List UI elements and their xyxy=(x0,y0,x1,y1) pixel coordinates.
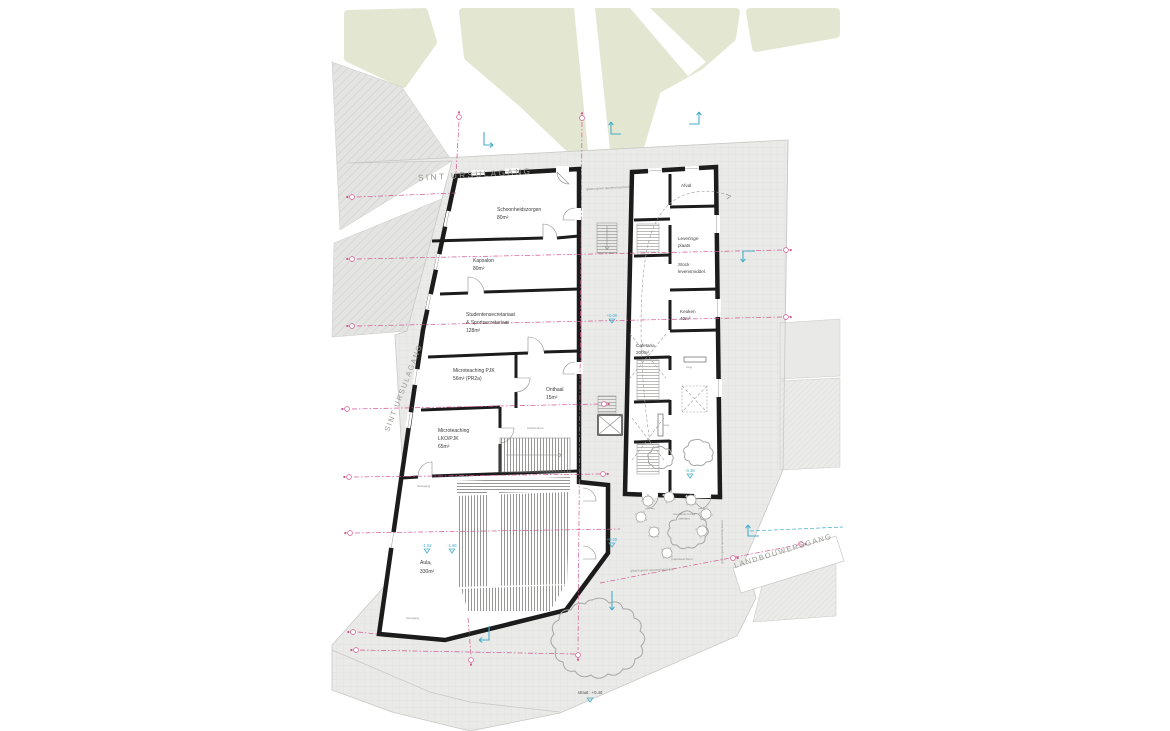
courtyard-stair-top xyxy=(597,223,617,253)
label-terrace-2: cafetaria xyxy=(678,517,690,521)
glass-note-right: glazen gevel openend bij brand xyxy=(720,520,724,563)
label-terrace-1: overdekte terras xyxy=(673,512,696,516)
level-courtyard-upper: +0.00 xyxy=(607,313,618,318)
room-label-keuken: Keuken xyxy=(680,309,696,314)
aula-seating xyxy=(457,477,570,611)
room-label-onthaal: Onthaal xyxy=(546,387,564,393)
site-plan-svg: +0.00 +0.00 -1.62 -1.86 -0.36 straat : +… xyxy=(0,0,1170,731)
room-area-secretariaat: 128m² xyxy=(466,328,481,334)
room-label-microteaching-lko: Microteaching xyxy=(438,428,469,434)
label-wachtruimte: wachtruimte xyxy=(527,426,544,430)
room-label-aula: Aula₁ xyxy=(420,560,432,566)
room-area-schoonheidszorgen: 80m² xyxy=(497,215,509,221)
room-label-microteaching-lko2: LKO/PJK xyxy=(438,436,459,442)
room-area-microteaching-lko: 65m² xyxy=(438,444,450,450)
building-right xyxy=(625,166,731,509)
room-label-stock: Stock xyxy=(678,262,690,267)
room-area-kapsalon: 80m² xyxy=(473,266,485,272)
level-aula-left: -1.62 xyxy=(422,543,432,548)
room-area-aula: 330m² xyxy=(420,569,435,575)
street-level-label: straat : +0.40 xyxy=(578,690,603,695)
floor-plan-page: +0.00 +0.00 -1.62 -1.86 -0.36 straat : +… xyxy=(0,0,1170,731)
level-aula-right: -1.86 xyxy=(447,543,457,548)
room-label-schoonheidszorgen: Schoonheidszorgen xyxy=(497,207,541,213)
room-label-kapsalon: Kapsalon xyxy=(473,258,494,264)
room-label-plaats: plaats xyxy=(678,243,691,248)
label-doorgang-bottom: doorgang xyxy=(406,616,419,620)
label-doorgang-top: doorgang xyxy=(417,484,430,488)
room-label-cafetaria: Cafetaria xyxy=(636,343,655,348)
room-label-afval: Afval xyxy=(681,183,691,188)
level-wintergarden: -0.36 xyxy=(685,468,695,473)
label-projection-screen: projectiescherm xyxy=(671,557,693,561)
room-area-keuken: 40m² xyxy=(680,316,691,321)
room-area-onthaal: 15m² xyxy=(546,395,558,401)
room-area-cafetaria: 200m² xyxy=(636,350,649,355)
room-label-levensmiddel: levensmiddel. xyxy=(678,269,706,274)
room-label-leverings: Leverings- xyxy=(678,236,700,241)
label-toog-2: toog xyxy=(663,423,669,427)
room-label-sportsecretariaat: & Sportsecretariaat xyxy=(466,320,509,326)
room-label-microteaching-pjk: Microteaching PJK xyxy=(453,368,495,374)
level-courtyard-lower: +0.00 xyxy=(607,537,618,542)
room-label-studentensecretariaat: Studentensecretariaat xyxy=(466,312,516,318)
label-toog-1: toog xyxy=(686,365,692,369)
room-area-microteaching-pjk: 56m² (PR2a) xyxy=(453,376,482,382)
